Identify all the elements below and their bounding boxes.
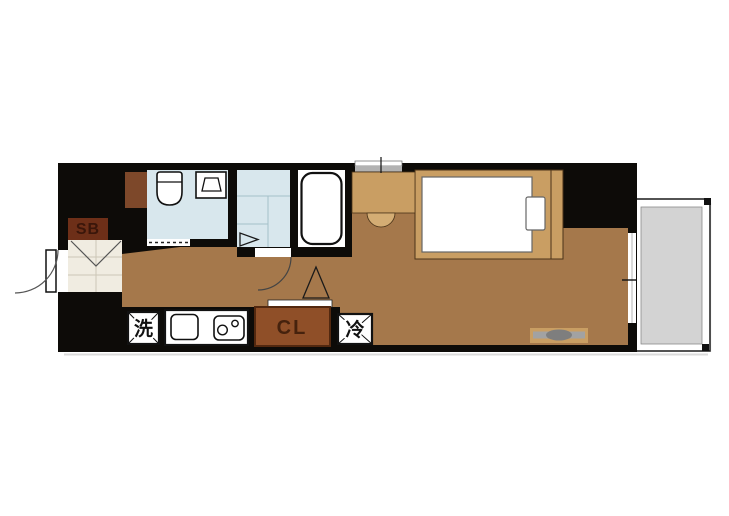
top-window-inner xyxy=(355,166,402,172)
floor-plan: SB 洗 CL 冷 xyxy=(0,0,729,516)
vanity xyxy=(196,172,226,198)
bathtub xyxy=(302,173,342,244)
floor-plan-canvas: SB 洗 CL 冷 xyxy=(0,0,729,516)
entrance-door xyxy=(46,250,56,292)
stove-burner-large xyxy=(218,325,228,335)
bed-pillow xyxy=(526,197,545,230)
top-window-outer xyxy=(355,161,402,166)
balcony-post-top xyxy=(704,198,711,205)
toilet xyxy=(157,172,182,205)
ac-unit-body xyxy=(546,330,572,341)
bathroom-doorway xyxy=(255,248,291,257)
balcony-post-bottom xyxy=(702,344,709,351)
main-room-floor-right xyxy=(563,228,628,345)
washer-label: 洗 xyxy=(134,317,153,340)
balcony-floor xyxy=(641,207,702,344)
hallway-floor xyxy=(122,247,237,307)
kitchen-floor xyxy=(237,257,352,307)
shoe-box-label: SB xyxy=(76,221,100,238)
closet-label: CL xyxy=(277,317,308,339)
entrance-opening xyxy=(58,250,68,292)
bed-mattress xyxy=(422,177,532,252)
kitchen-sink xyxy=(171,315,198,340)
desk-counter xyxy=(352,172,415,213)
pipe-space xyxy=(125,172,147,208)
stove-burner-small xyxy=(232,320,238,326)
closet-door xyxy=(268,300,332,307)
refrigerator-label: 冷 xyxy=(345,318,364,341)
